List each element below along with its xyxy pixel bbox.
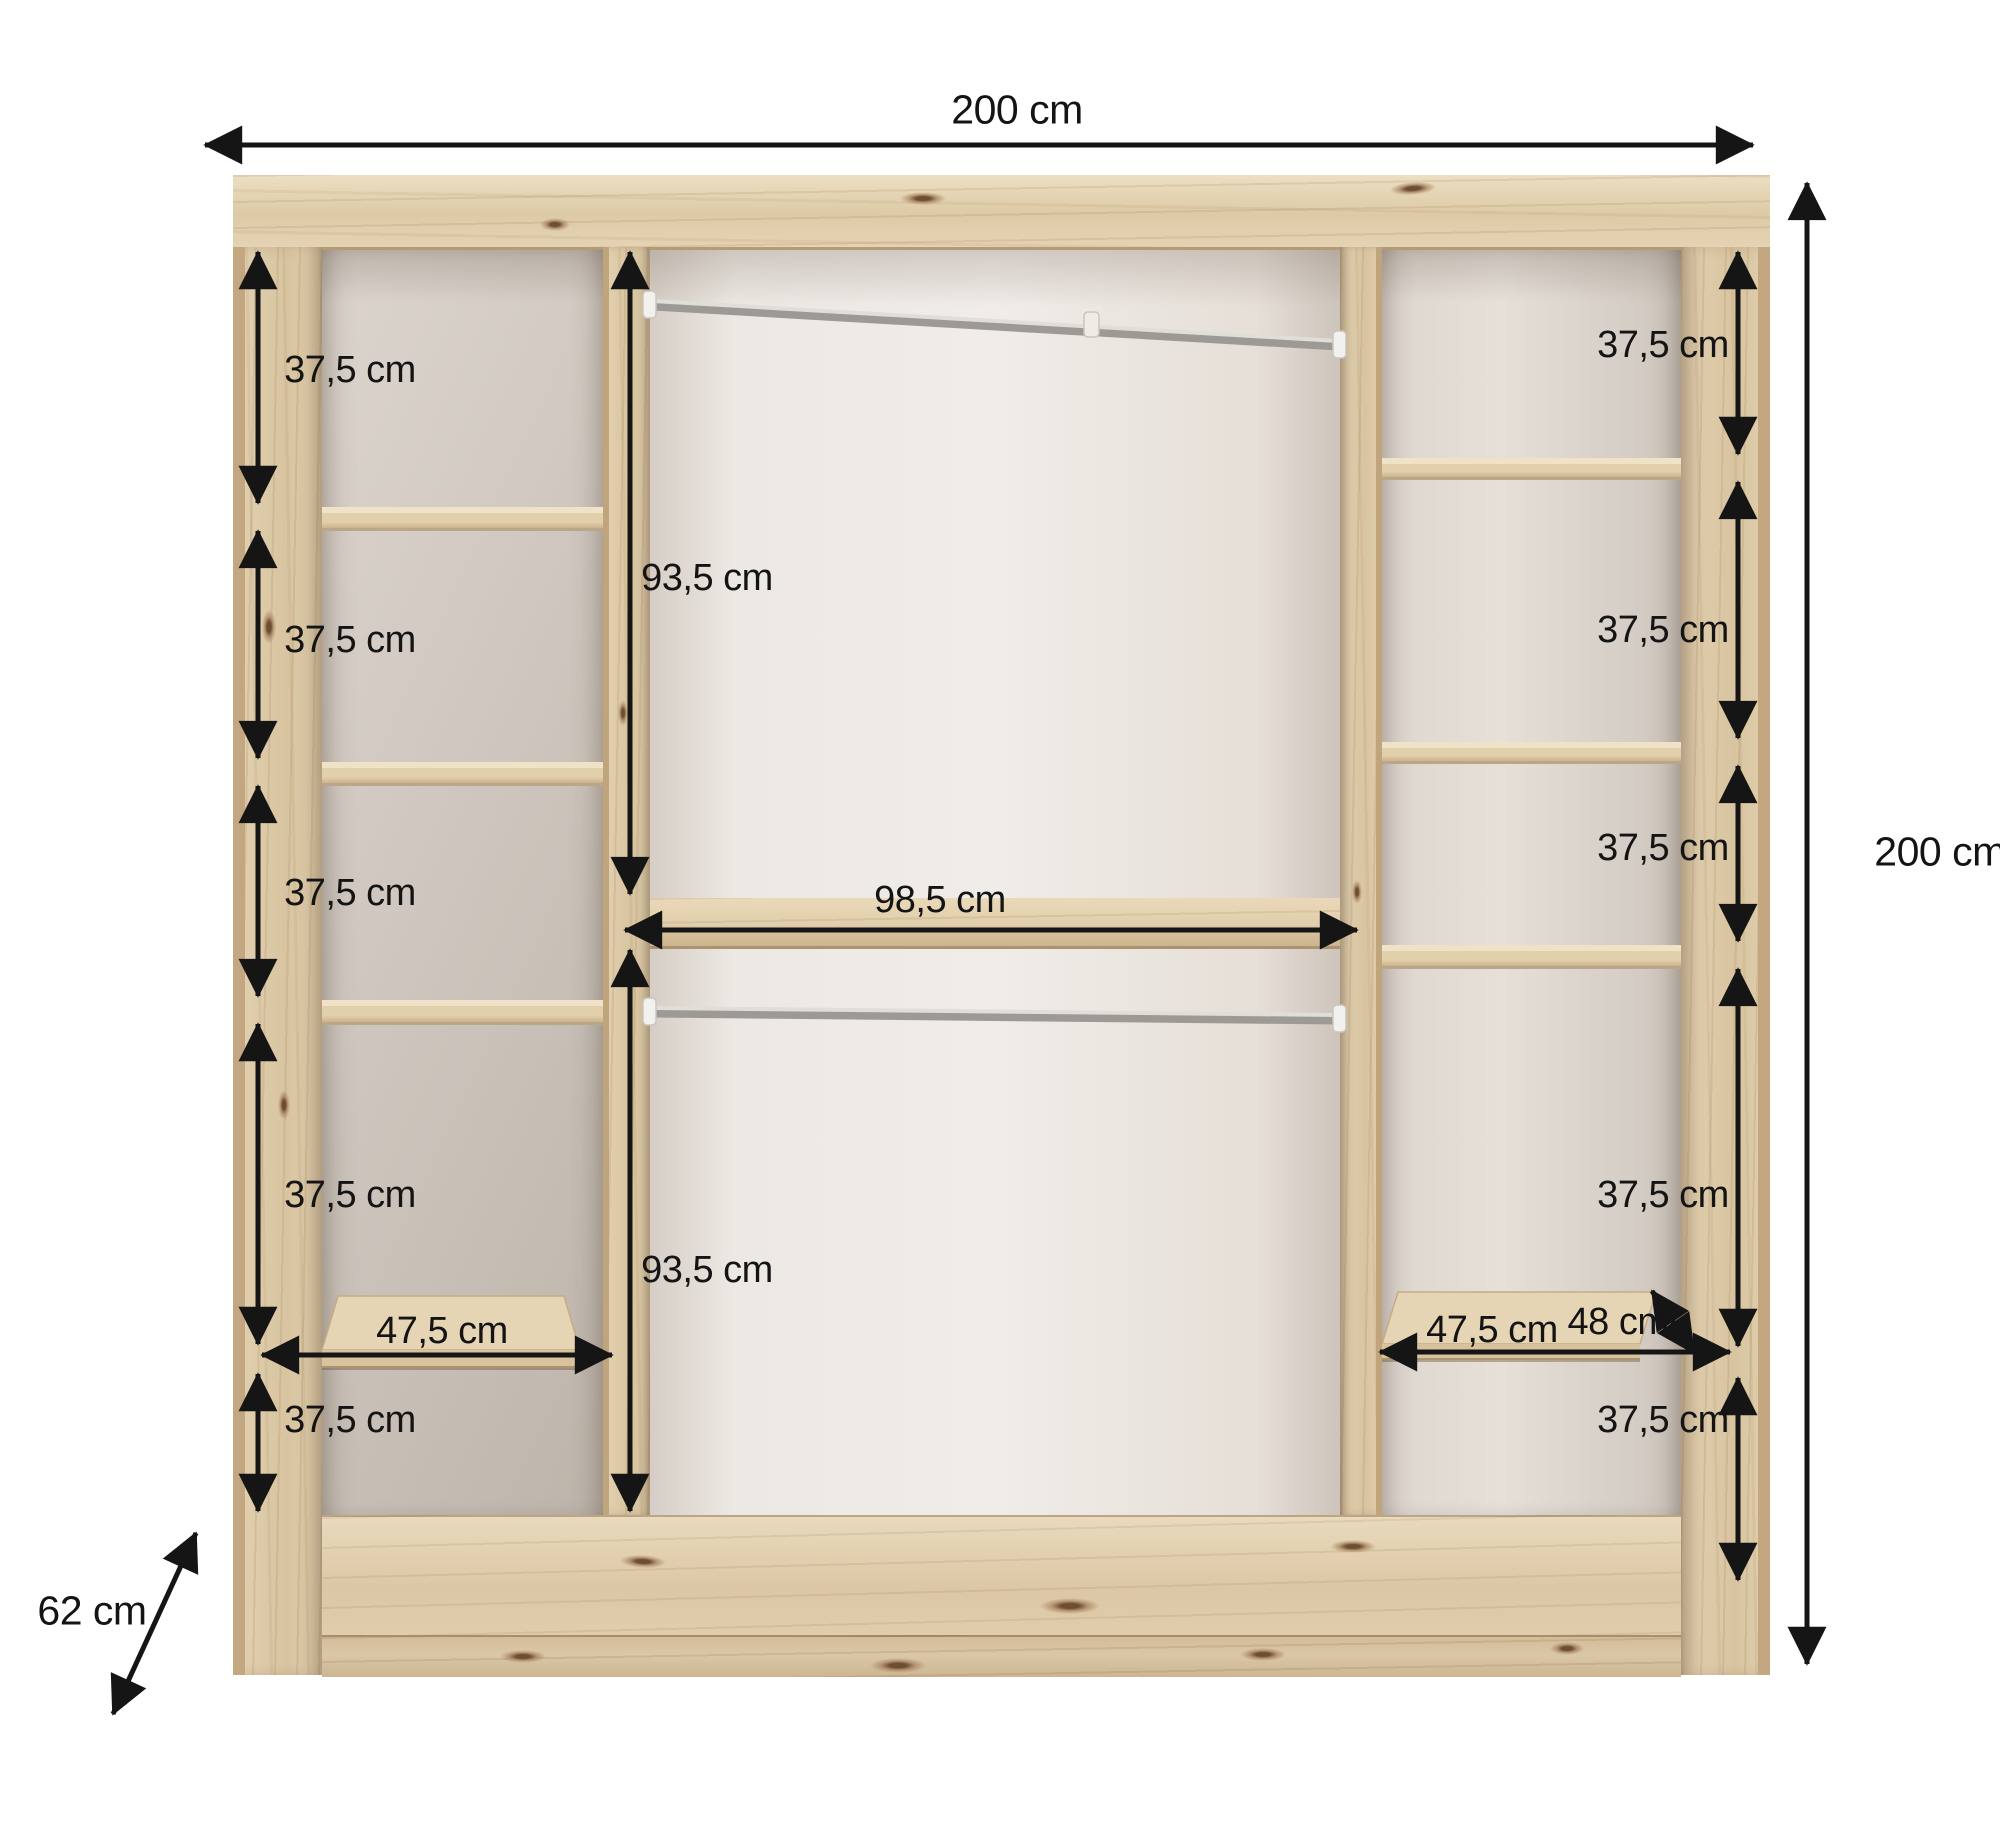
- right-compartment-1-label: 37,5 cm: [1597, 326, 1729, 364]
- right-shelf-width-label: 47,5 cm: [1426, 1311, 1558, 1349]
- right-shelf-depth-label: 48 cm: [1568, 1303, 1669, 1341]
- lower-hanging-rail: [643, 998, 1346, 1032]
- left-compartment-3-label: 37,5 cm: [284, 874, 416, 912]
- overall-height-label: 200 cm: [1874, 832, 2000, 873]
- right-compartment-2-label: 37,5 cm: [1597, 611, 1729, 649]
- center-width-label: 98,5 cm: [874, 881, 1006, 919]
- wardrobe-dimension-diagram: 200 cm 200 cm 62 cm 37,5 cm 37,5 cm 37,5…: [0, 0, 2000, 1832]
- left-compartment-1-label: 37,5 cm: [284, 351, 416, 389]
- left-compartment-5-label: 37,5 cm: [284, 1401, 416, 1439]
- left-compartment-4-label: 37,5 cm: [284, 1176, 416, 1214]
- upper-hanging-rail: [643, 291, 1346, 358]
- right-compartment-4-label: 37,5 cm: [1597, 1176, 1729, 1214]
- right-compartment-5-label: 37,5 cm: [1597, 1401, 1729, 1439]
- center-lower-height-label: 93,5 cm: [641, 1251, 773, 1289]
- overall-width-label: 200 cm: [951, 90, 1082, 131]
- right-compartment-3-label: 37,5 cm: [1597, 829, 1729, 867]
- center-upper-height-label: 93,5 cm: [641, 559, 773, 597]
- depth-label: 62 cm: [37, 1591, 146, 1632]
- left-shelf-width-label: 47,5 cm: [376, 1312, 508, 1350]
- left-compartment-2-label: 37,5 cm: [284, 621, 416, 659]
